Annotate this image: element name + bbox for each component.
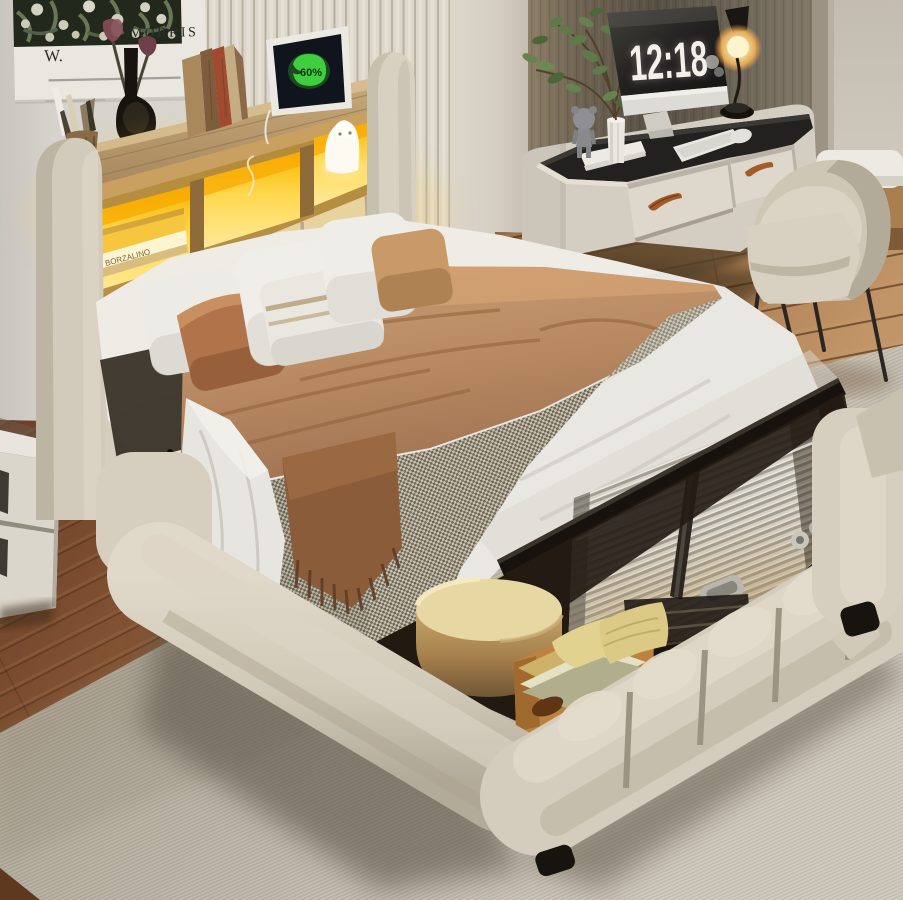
svg-text:W.: W.: [44, 46, 63, 65]
svg-text:60%: 60%: [300, 67, 322, 79]
svg-text:12:18: 12:18: [628, 30, 710, 91]
